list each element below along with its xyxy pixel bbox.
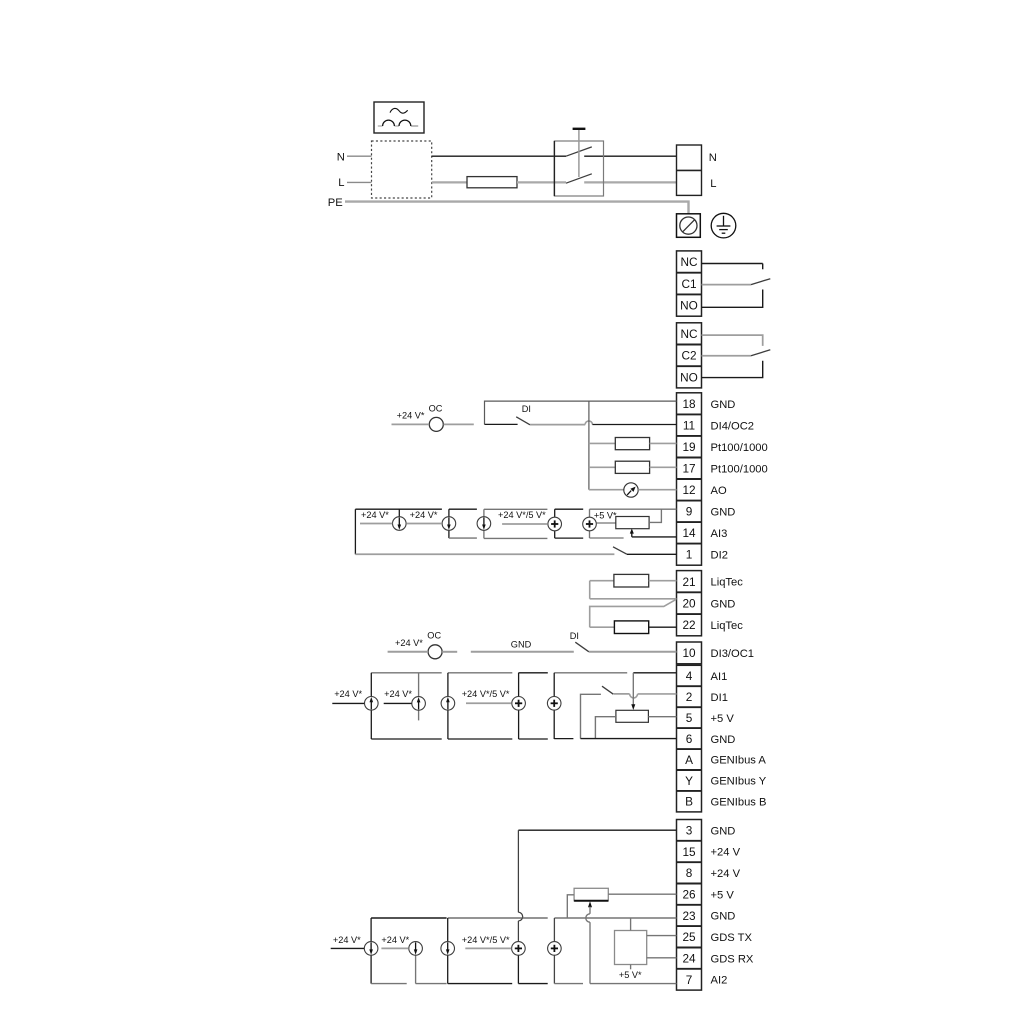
svg-text:6: 6 xyxy=(686,732,693,746)
svg-text:PE: PE xyxy=(328,197,343,209)
svg-text:GND: GND xyxy=(711,399,736,411)
svg-text:7: 7 xyxy=(686,973,693,987)
svg-text:10: 10 xyxy=(682,646,696,660)
svg-text:24: 24 xyxy=(682,951,696,965)
svg-text:Pt100/1000: Pt100/1000 xyxy=(711,442,768,454)
svg-text:+24 V*: +24 V* xyxy=(384,689,412,699)
svg-text:B: B xyxy=(685,795,693,809)
svg-text:GND: GND xyxy=(711,825,736,837)
svg-text:+5 V*: +5 V* xyxy=(594,510,617,520)
svg-text:C1: C1 xyxy=(681,277,696,291)
svg-text:25: 25 xyxy=(682,930,696,944)
svg-text:14: 14 xyxy=(682,526,696,540)
svg-text:17: 17 xyxy=(682,462,695,476)
svg-text:+24 V*/5 V*: +24 V*/5 V* xyxy=(462,689,510,699)
svg-text:+24 V: +24 V xyxy=(711,868,741,880)
svg-text:+5 V: +5 V xyxy=(711,889,735,901)
svg-text:GND: GND xyxy=(711,507,736,519)
svg-text:22: 22 xyxy=(682,618,695,632)
svg-text:+24 V*: +24 V* xyxy=(397,411,425,421)
svg-text:NC: NC xyxy=(680,327,698,341)
svg-text:+24 V*: +24 V* xyxy=(333,935,361,945)
svg-text:15: 15 xyxy=(682,845,696,859)
svg-text:+24 V*/5 V*: +24 V*/5 V* xyxy=(462,935,510,945)
svg-text:GND: GND xyxy=(711,734,736,746)
svg-text:DI2: DI2 xyxy=(711,550,728,562)
svg-text:LiqTec: LiqTec xyxy=(711,577,744,589)
svg-text:L: L xyxy=(338,177,344,189)
svg-text:GND: GND xyxy=(711,598,736,610)
svg-text:AI1: AI1 xyxy=(711,671,728,683)
svg-text:DI: DI xyxy=(570,631,579,641)
svg-text:Pt100/1000: Pt100/1000 xyxy=(711,463,768,475)
svg-text:OC: OC xyxy=(427,630,441,640)
svg-text:4: 4 xyxy=(686,669,693,683)
svg-text:+24 V*: +24 V* xyxy=(381,935,409,945)
svg-text:11: 11 xyxy=(683,418,695,432)
svg-text:Y: Y xyxy=(685,774,693,788)
svg-text:2: 2 xyxy=(686,690,693,704)
svg-text:12: 12 xyxy=(682,483,695,497)
svg-text:9: 9 xyxy=(686,505,693,519)
svg-text:GND: GND xyxy=(511,639,532,649)
svg-text:N: N xyxy=(337,152,345,164)
svg-text:+5 V*: +5 V* xyxy=(619,970,642,980)
svg-text:AI3: AI3 xyxy=(711,528,728,540)
svg-text:1: 1 xyxy=(686,548,693,562)
svg-text:DI1: DI1 xyxy=(711,692,728,704)
svg-text:DI4/OC2: DI4/OC2 xyxy=(711,420,755,432)
svg-text:AI2: AI2 xyxy=(711,975,728,987)
svg-text:NO: NO xyxy=(680,370,698,384)
svg-text:19: 19 xyxy=(682,440,695,454)
svg-text:26: 26 xyxy=(682,888,696,902)
svg-text:NC: NC xyxy=(680,255,698,269)
svg-text:GDS RX: GDS RX xyxy=(711,953,754,965)
svg-text:+24 V: +24 V xyxy=(711,847,741,859)
svg-text:C2: C2 xyxy=(681,349,696,363)
svg-text:5: 5 xyxy=(686,711,693,725)
svg-text:+24 V*: +24 V* xyxy=(334,689,362,699)
svg-text:+24 V*: +24 V* xyxy=(395,638,423,648)
svg-text:DI3/OC1: DI3/OC1 xyxy=(711,648,755,660)
svg-text:L: L xyxy=(710,178,716,190)
svg-text:GENIbus Y: GENIbus Y xyxy=(711,776,767,788)
svg-text:GENIbus B: GENIbus B xyxy=(711,797,767,809)
svg-text:AO: AO xyxy=(711,485,727,497)
svg-text:21: 21 xyxy=(682,575,695,589)
svg-text:23: 23 xyxy=(682,909,696,923)
svg-text:N: N xyxy=(709,152,717,164)
svg-text:GDS TX: GDS TX xyxy=(711,932,753,944)
svg-text:LiqTec: LiqTec xyxy=(711,620,744,632)
svg-text:20: 20 xyxy=(682,597,696,611)
svg-text:3: 3 xyxy=(686,824,693,838)
svg-text:GND: GND xyxy=(711,911,736,923)
svg-text:DI: DI xyxy=(522,404,531,414)
svg-text:+24 V*/5 V*: +24 V*/5 V* xyxy=(498,510,546,520)
svg-text:18: 18 xyxy=(682,397,696,411)
svg-text:+5 V: +5 V xyxy=(711,713,735,725)
svg-text:GENIbus A: GENIbus A xyxy=(711,755,767,767)
svg-text:NO: NO xyxy=(680,299,698,313)
svg-text:8: 8 xyxy=(686,866,693,880)
svg-text:+24 V*: +24 V* xyxy=(410,510,438,520)
svg-text:OC: OC xyxy=(429,403,443,413)
svg-text:A: A xyxy=(685,753,693,767)
svg-text:+24 V*: +24 V* xyxy=(361,510,389,520)
